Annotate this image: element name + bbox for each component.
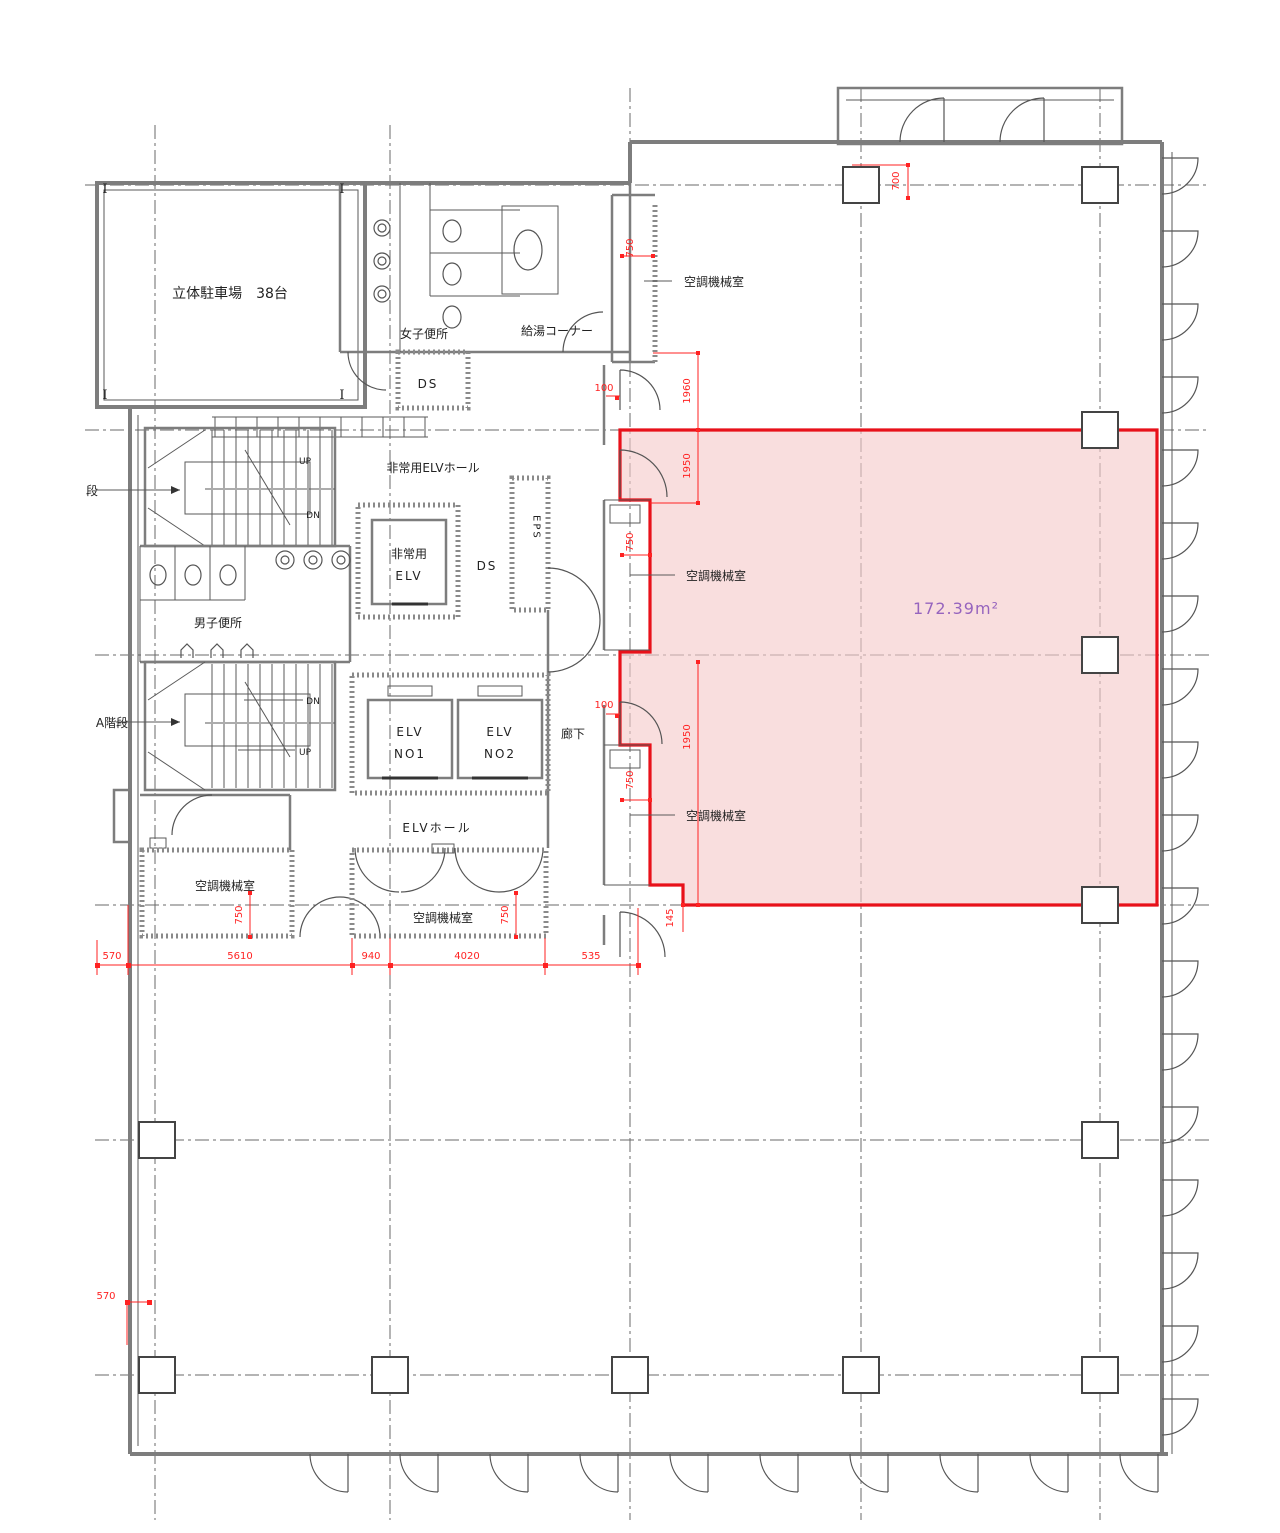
label-up-2: UP xyxy=(299,748,312,758)
dim-535: 535 xyxy=(581,951,600,962)
steel-mark-icon: I xyxy=(102,182,107,197)
mens-toilet-room xyxy=(140,546,350,662)
label-emergency-elv-2: ELV xyxy=(395,569,422,583)
label-elv1: ELV xyxy=(396,725,423,739)
label-emergency-elv-1: 非常用 xyxy=(391,547,427,561)
floor-plan-drawing: 750 100 1960 1950 750 100 1950 750 145 7… xyxy=(0,0,1280,1533)
label-hot-water-corner: 給湯コーナー xyxy=(521,324,593,338)
label-eps: EPS xyxy=(531,515,542,540)
label-elv-hall: ELVホール xyxy=(402,821,471,835)
label-stair-b: 段 xyxy=(86,483,98,498)
label-elv1-no: NO1 xyxy=(394,747,426,761)
label-hvac-center: 空調機械室 xyxy=(413,910,473,925)
label-hvac-unit-upper: 空調機械室 xyxy=(686,568,746,583)
label-hvac-unit-lower: 空調機械室 xyxy=(686,808,746,823)
label-hvac-left: 空調機械室 xyxy=(195,878,255,893)
dim-4020: 4020 xyxy=(454,951,479,962)
elevator-bank xyxy=(352,675,548,793)
label-ds-top: DS xyxy=(418,377,439,391)
label-elv2-no: NO2 xyxy=(484,747,516,761)
dim-100-mid: 100 xyxy=(594,700,613,711)
label-emergency-elv-hall: 非常用ELVホール xyxy=(386,461,479,475)
dim-750-room-left: 750 xyxy=(234,905,245,924)
dim-570-bottom: 570 xyxy=(102,951,121,962)
dim-750-low: 750 xyxy=(625,770,636,789)
label-womens-toilet: 女子便所 xyxy=(400,326,448,341)
label-elv2: ELV xyxy=(486,725,513,739)
dim-940: 940 xyxy=(361,951,380,962)
steel-mark-icon: I xyxy=(339,388,344,403)
dim-1950-lower: 1950 xyxy=(682,724,693,749)
label-ds-mid: DS xyxy=(477,559,498,573)
dim-750-room-right: 750 xyxy=(500,905,511,924)
label-stair-a: A階段 xyxy=(96,715,128,730)
dim-700: 700 xyxy=(891,171,902,190)
dim-145: 145 xyxy=(665,908,676,927)
label-parking: 立体駐車場 38台 xyxy=(172,285,288,302)
floor-plan: 750 100 1960 1950 750 100 1950 750 145 7… xyxy=(0,0,1280,1533)
unit-area-label: 172.39m² xyxy=(913,599,999,618)
highlighted-unit-outline xyxy=(620,430,1157,905)
stair-a xyxy=(145,662,335,790)
dim-750-mid: 750 xyxy=(625,532,636,551)
stair-b xyxy=(145,428,335,546)
label-mens-toilet: 男子便所 xyxy=(194,616,242,630)
steel-mark-icon: I xyxy=(339,182,344,197)
label-dn-2: DN xyxy=(306,697,320,707)
label-corridor: 廊下 xyxy=(561,726,585,741)
steel-mark-icon: I xyxy=(102,388,107,403)
label-up-1: UP xyxy=(299,457,312,467)
dim-5610: 5610 xyxy=(227,951,252,962)
highlighted-unit xyxy=(620,430,1157,905)
dim-1960: 1960 xyxy=(682,378,693,403)
dim-570-left: 570 xyxy=(96,1291,115,1302)
label-dn-1: DN xyxy=(306,511,320,521)
dim-100-top: 100 xyxy=(594,383,613,394)
emergency-elevator xyxy=(358,505,458,617)
dim-1950-upper: 1950 xyxy=(682,453,693,478)
dim-750-top: 750 xyxy=(625,238,636,257)
label-hvac-top: 空調機械室 xyxy=(684,274,744,289)
